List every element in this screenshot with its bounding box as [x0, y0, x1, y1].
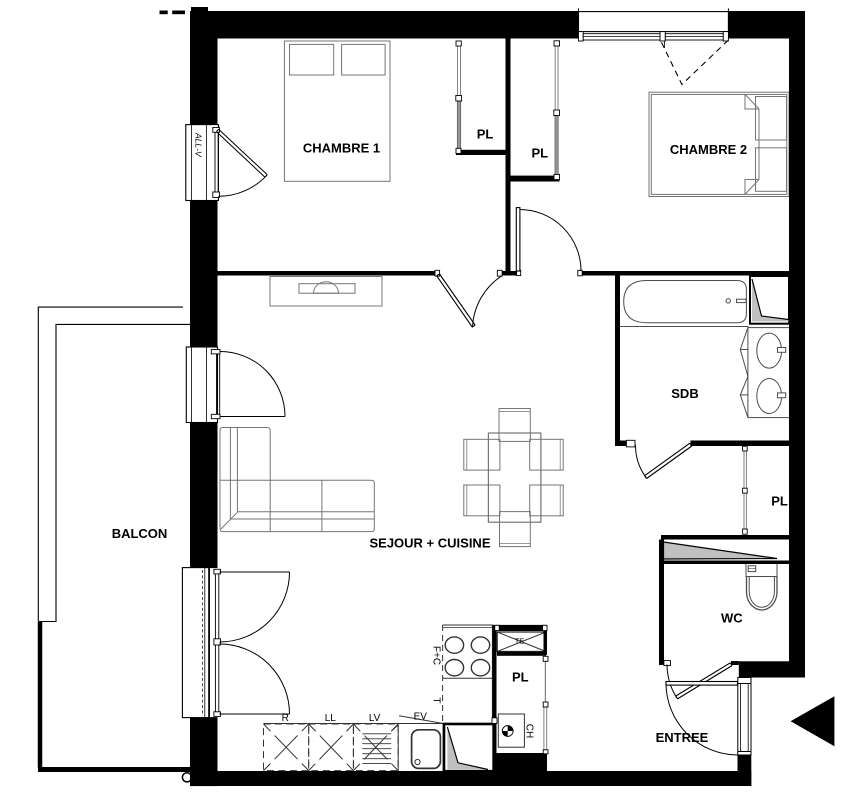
svg-text:BALCON: BALCON	[112, 526, 168, 541]
svg-text:F+C: F+C	[431, 646, 442, 665]
svg-text:EV: EV	[414, 712, 428, 723]
svg-text:TE: TE	[515, 637, 525, 646]
svg-text:ENTREE: ENTREE	[656, 730, 709, 745]
svg-text:CH: CH	[524, 724, 535, 738]
svg-text:LL: LL	[325, 713, 337, 724]
svg-text:R: R	[282, 713, 289, 724]
svg-text:LV: LV	[369, 713, 381, 724]
svg-text:WC: WC	[721, 610, 743, 625]
svg-text:SEJOUR + CUISINE: SEJOUR + CUISINE	[369, 535, 490, 550]
svg-text:CHAMBRE 1: CHAMBRE 1	[303, 141, 380, 156]
svg-text:PL: PL	[512, 669, 529, 684]
svg-text:PL: PL	[531, 145, 548, 160]
svg-text:CHAMBRE 2: CHAMBRE 2	[670, 142, 747, 157]
svg-text:T: T	[431, 697, 442, 703]
svg-text:PL: PL	[771, 493, 788, 508]
svg-text:SDB: SDB	[671, 386, 698, 401]
svg-text:PL: PL	[477, 126, 494, 141]
svg-text:ALL-V: ALL-V	[194, 132, 204, 158]
